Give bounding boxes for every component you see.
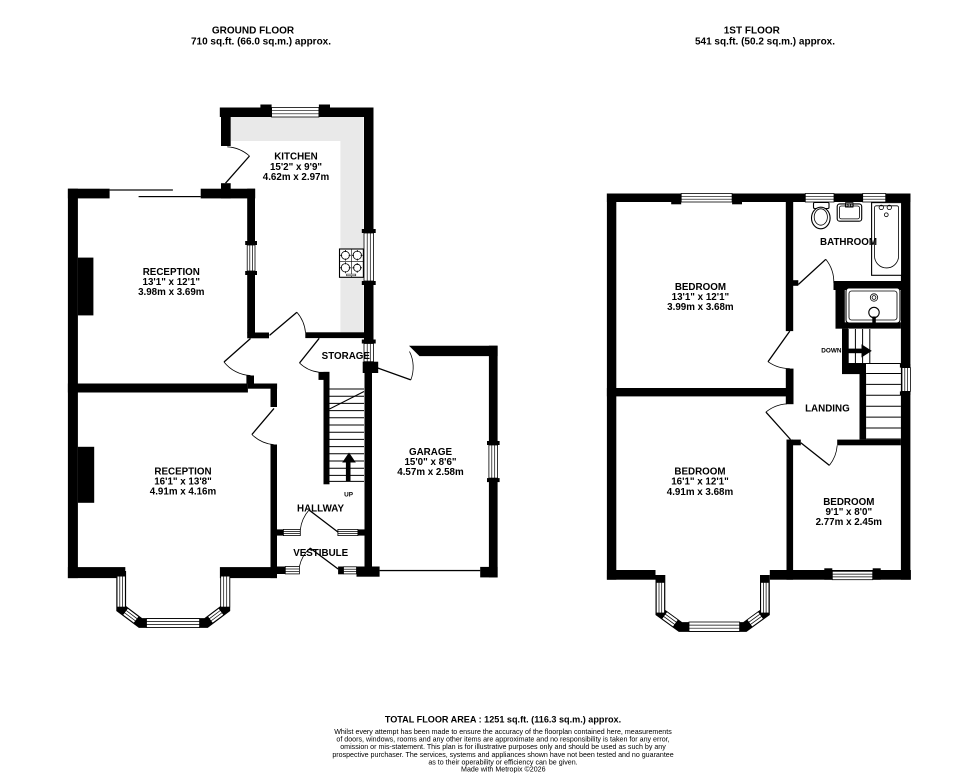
svg-text:GROUND FLOOR: GROUND FLOOR [212,26,295,37]
svg-text:LANDING: LANDING [805,404,850,415]
svg-text:1ST FLOOR: 1ST FLOOR [724,26,781,37]
svg-text:HALLWAY: HALLWAY [297,503,344,514]
svg-text:541 sq.ft. (50.2 sq.m.) approx: 541 sq.ft. (50.2 sq.m.) approx. [695,36,835,47]
svg-text:2.77m x 2.45m: 2.77m x 2.45m [816,517,883,528]
svg-text:3.98m x 3.69m: 3.98m x 3.69m [138,287,205,298]
svg-text:4.57m x 2.58m: 4.57m x 2.58m [397,467,464,478]
svg-text:DOWN: DOWN [821,348,842,355]
svg-text:TOTAL FLOOR AREA : 1251 sq.ft.: TOTAL FLOOR AREA : 1251 sq.ft. (116.3 sq… [385,714,621,724]
svg-text:4.91m x 4.16m: 4.91m x 4.16m [150,487,217,498]
svg-text:3.99m x 3.68m: 3.99m x 3.68m [667,302,734,313]
svg-text:Made with Metropix ©2026: Made with Metropix ©2026 [461,766,546,774]
svg-text:UP: UP [344,492,354,499]
svg-text:710 sq.ft. (66.0 sq.m.) approx: 710 sq.ft. (66.0 sq.m.) approx. [191,36,331,47]
svg-text:4.91m x 3.68m: 4.91m x 3.68m [667,487,734,498]
svg-text:BATHROOM: BATHROOM [820,237,877,248]
svg-text:VESTIBULE: VESTIBULE [293,548,348,559]
svg-text:STORAGE: STORAGE [322,351,371,362]
svg-text:4.62m x 2.97m: 4.62m x 2.97m [263,172,330,183]
